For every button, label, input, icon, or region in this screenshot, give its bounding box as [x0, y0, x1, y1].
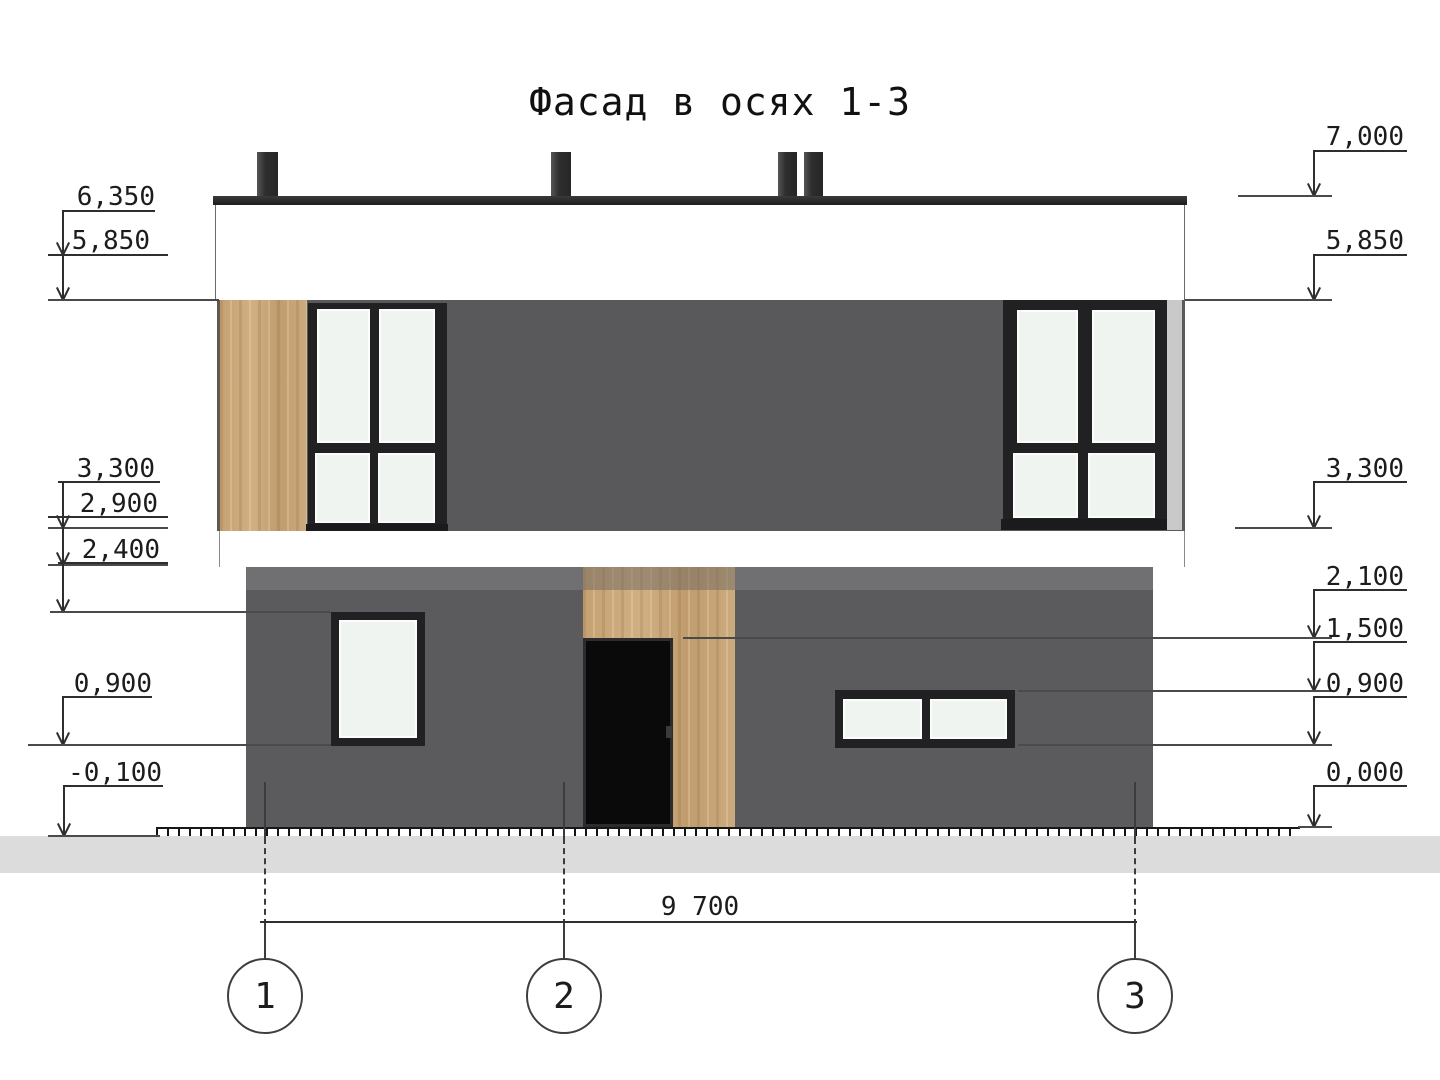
axis-number: 1 — [254, 976, 276, 1017]
level-line — [50, 611, 331, 613]
level-line — [1298, 826, 1332, 828]
window-lower-left-pane — [339, 620, 417, 738]
leader-line — [1313, 785, 1407, 787]
window-upper-left-pane-tl — [317, 309, 370, 443]
leader-line — [1313, 589, 1407, 591]
window-upper-right-pane-tr — [1092, 310, 1155, 443]
elevation-label: 2,900 — [78, 491, 158, 517]
level-line — [683, 637, 1332, 639]
roof-vent-3 — [778, 152, 797, 196]
leader-line — [58, 562, 168, 564]
dimension-text: 9 700 — [640, 892, 760, 922]
axis-bubble: 3 — [1097, 958, 1173, 1034]
elevation-label: 5,850 — [70, 228, 150, 254]
window-upper-left-pane-bl — [315, 453, 370, 523]
window-upper-left-pane-tr — [379, 309, 435, 443]
roof-vent-1 — [257, 152, 278, 196]
window-upper-right-pane-bl — [1013, 453, 1078, 518]
leader-line — [1313, 254, 1407, 256]
axis-bubble: 1 — [227, 958, 303, 1034]
leader-line — [48, 516, 168, 518]
leader-line — [1313, 481, 1407, 483]
entrance-door — [583, 638, 673, 827]
corner-strip — [1167, 300, 1182, 530]
elevation-label: 5,850 — [1324, 228, 1404, 254]
axis-line-dashed — [1134, 838, 1136, 925]
elevation-label: 0,000 — [1324, 760, 1404, 786]
elevation-label: 0,900 — [1324, 671, 1404, 697]
level-line — [1238, 195, 1332, 197]
axis-line — [264, 925, 266, 958]
door-handle — [666, 726, 672, 738]
elevation-label: 3,300 — [1324, 456, 1404, 482]
elevation-label: 3,300 — [75, 456, 155, 482]
facade-drawing: Фасад в осях 1-3 6,35 — [0, 0, 1440, 1080]
window-ribbon-pane-right — [930, 699, 1007, 739]
leader-line — [58, 481, 160, 483]
roof-vent-2 — [551, 152, 571, 196]
level-line — [1018, 690, 1332, 692]
leader-line — [1313, 150, 1407, 152]
axis-line — [1134, 925, 1136, 958]
window-upper-right-pane-br — [1088, 453, 1155, 518]
wood-panel-upper — [219, 300, 307, 531]
window-upper-left-pane-br — [378, 453, 435, 523]
axis-line — [563, 782, 565, 838]
axis-bubble: 2 — [526, 958, 602, 1034]
axis-number: 2 — [553, 976, 575, 1017]
elevation-label: -0,100 — [66, 760, 162, 786]
leader-line — [1313, 696, 1407, 698]
elevation-label: 2,100 — [1324, 564, 1404, 590]
axis-line — [563, 925, 565, 958]
dimension-line — [260, 921, 1137, 923]
axis-line-dashed — [563, 838, 565, 925]
drawing-title: Фасад в осях 1-3 — [400, 80, 1040, 124]
roof-slab — [213, 196, 1187, 205]
ground-strip — [0, 836, 1440, 873]
roof-vent-4 — [804, 152, 823, 196]
elevation-label: 6,350 — [75, 184, 155, 210]
axis-number: 3 — [1124, 976, 1146, 1017]
level-line — [1185, 299, 1332, 301]
axis-line-dashed — [264, 838, 266, 925]
level-line — [48, 835, 160, 837]
blind-area-hatch — [156, 827, 1300, 836]
window-upper-right-sill — [1001, 519, 1168, 530]
leader-line — [62, 696, 152, 698]
leader-line — [62, 210, 155, 212]
parapet-band — [215, 205, 1185, 300]
level-line — [1235, 527, 1332, 529]
door-surround-top-band — [583, 567, 735, 590]
window-upper-right-pane-tl — [1017, 310, 1078, 443]
window-ribbon-pane-left — [843, 699, 922, 739]
level-line — [48, 527, 168, 529]
elevation-label: 1,500 — [1324, 616, 1404, 642]
level-line — [48, 299, 219, 301]
level-line — [1018, 744, 1332, 746]
leader-line — [1313, 641, 1407, 643]
elevation-label: 0,900 — [72, 671, 152, 697]
axis-line — [1134, 782, 1136, 838]
elevation-label: 2,400 — [80, 537, 160, 563]
down-arrow-icon — [1305, 731, 1323, 744]
floor-slab-band — [219, 531, 1185, 567]
level-line — [28, 744, 331, 746]
axis-line — [264, 782, 266, 838]
elevation-label: 7,000 — [1324, 124, 1404, 150]
leader-line — [48, 254, 168, 256]
leader-line — [63, 785, 163, 787]
